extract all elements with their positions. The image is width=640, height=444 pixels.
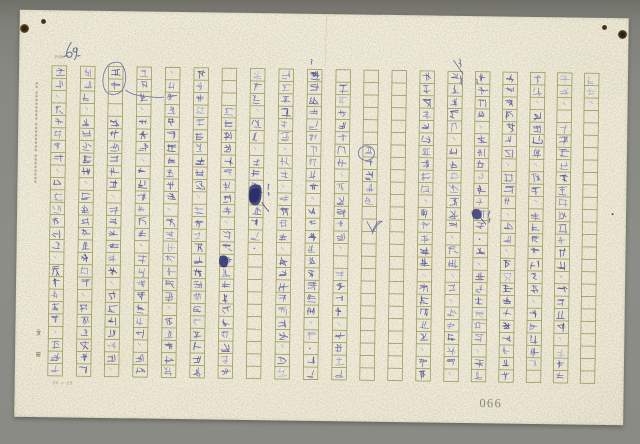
svg-text:066: 066 [479,396,502,410]
svg-text:30 × 25: 30 × 25 [53,380,73,385]
